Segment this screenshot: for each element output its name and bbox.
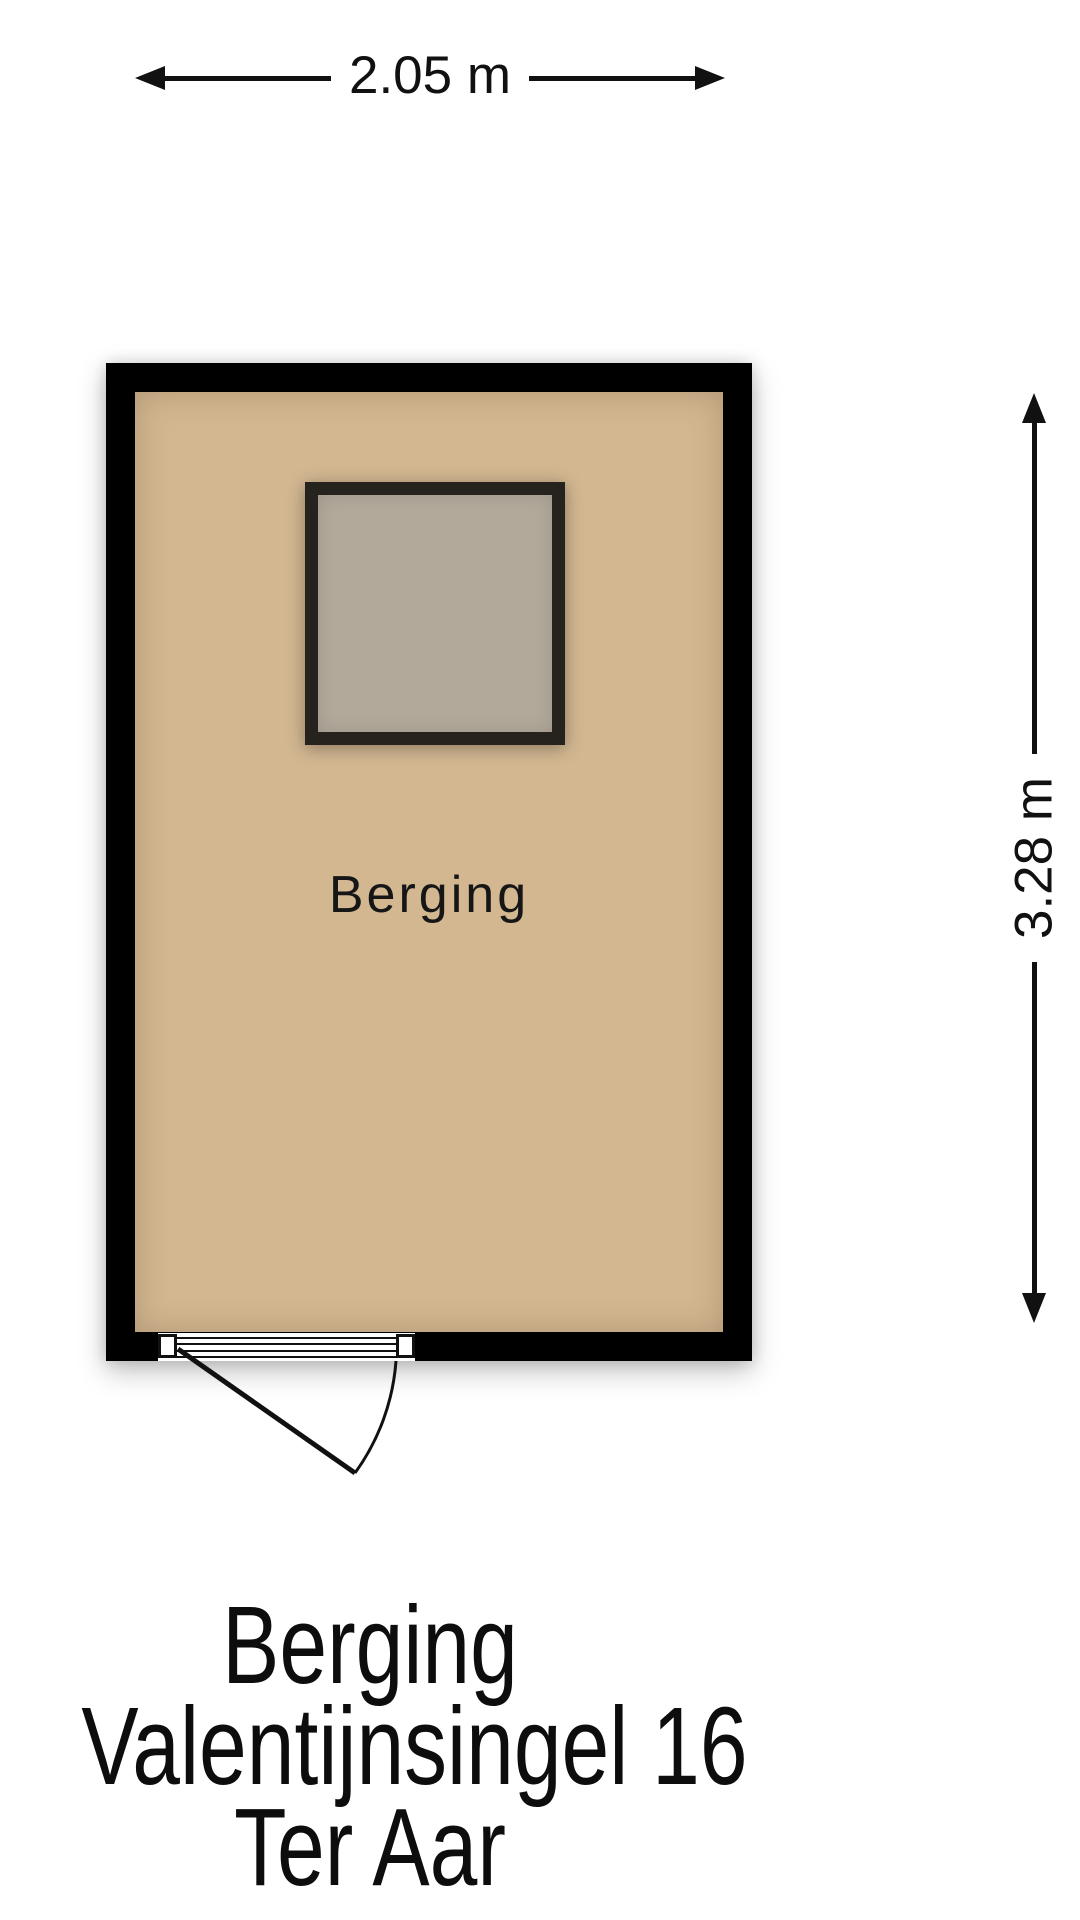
dimension-line [529,76,696,81]
height-dimension-label-box: 3.28 m [1006,754,1062,962]
dimension-line [1032,962,1037,1294]
plan-footer: Berging Valentijnsingel 16 Ter Aar [81,1595,658,1898]
width-dimension: 2.05 m [135,52,725,104]
threshold-line [177,1337,396,1339]
arrow-left-icon [135,66,165,90]
height-dimension-label: 3.28 m [1004,777,1065,939]
dimension-line [1032,422,1037,754]
footer-line-street: Valentijnsingel 16 [81,1696,658,1797]
width-dimension-label: 2.05 m [331,50,529,102]
door-swing-icon [140,1347,430,1497]
room-label: Berging [135,870,723,920]
dimension-line [164,76,331,81]
height-dimension: 3.28 m [1006,393,1062,1323]
arrow-up-icon [1022,393,1046,423]
footer-line-city: Ter Aar [81,1797,658,1898]
floorplan-canvas: 2.05 m Berging 3.28 m [0,0,1080,1920]
room-outline: Berging [106,363,752,1361]
arrow-down-icon [1022,1293,1046,1323]
threshold-line [177,1343,396,1345]
room-floor: Berging [135,392,723,1332]
footer-line-room: Berging [81,1595,658,1696]
floor-object-square [305,482,565,745]
door-swing-arc [355,1361,396,1473]
arrow-right-icon [695,66,725,90]
door-leaf-line [178,1349,355,1473]
